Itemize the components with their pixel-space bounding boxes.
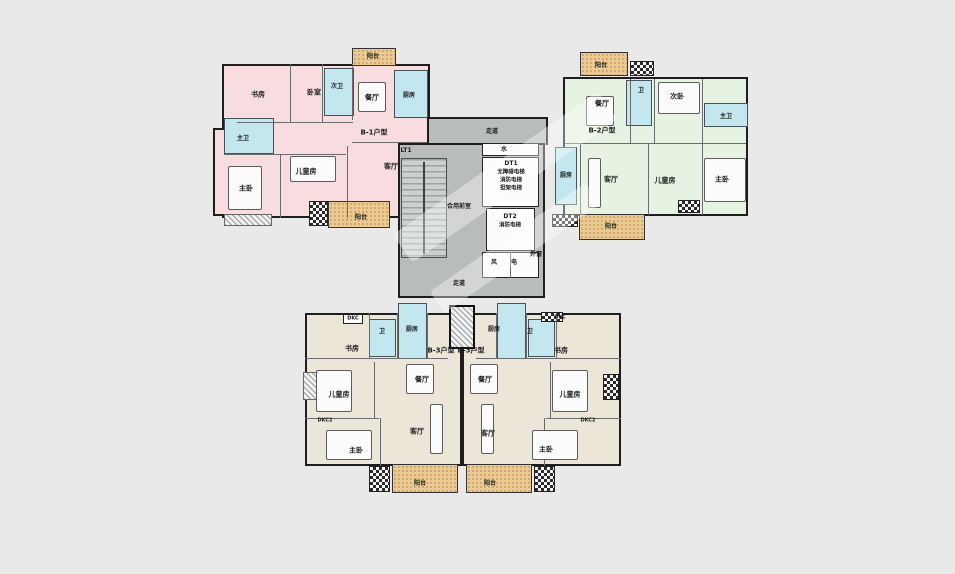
b3r-kids-label: 儿童房 (560, 392, 581, 399)
b3l-kids-label: 儿童房 (329, 392, 350, 399)
b2-bath2-label: 卫 (638, 88, 644, 94)
floor-plan: 阳台书房卧室次卫餐厅厨房B-1户型主卫主卧儿童房客厅阳台阳台餐厅卫次卧主卫B-2… (0, 0, 955, 574)
b3r-balcony-label: 阳台 (484, 481, 496, 487)
labels-layer: 阳台书房卧室次卫餐厅厨房B-1户型主卫主卧儿童房客厅阳台阳台餐厅卫次卧主卫B-2… (0, 0, 955, 574)
b3l-dining-label: 餐厅 (415, 377, 429, 384)
b1-kitchen-label: 厨房 (403, 93, 415, 99)
b3l-type-label: B-3户型 (427, 348, 454, 355)
b3r-ac-side-label: DKC2 (581, 419, 596, 424)
b2-bath1-label: 主卫 (720, 114, 732, 120)
elevator1-note1-label: 无障碍电梯 (497, 170, 525, 176)
b1-master-label: 主卧 (239, 186, 253, 193)
b1-living-label: 客厅 (384, 164, 398, 171)
b3r-master-label: 主卧 (539, 447, 553, 454)
elevator1-note2-label: 消防电梯 (500, 178, 522, 184)
b3r-bath-label: 卫 (527, 329, 533, 335)
elevator2-id-label: DT2 (503, 214, 516, 220)
b3r-kitchen-label: 厨房 (488, 327, 500, 333)
b2-bedroom2-label: 次卧 (670, 94, 684, 101)
b2-kids-label: 儿童房 (655, 178, 676, 185)
b3l-ac-side-label: DKC2 (318, 419, 333, 424)
b3r-study-label: 书房 (554, 348, 568, 355)
b1-study-label: 书房 (251, 92, 265, 99)
elevator2-note1-label: 消防电梯 (499, 223, 521, 229)
b2-balcony-top-label: 阳台 (595, 63, 607, 69)
b1-bath2-label: 次卫 (331, 84, 343, 90)
b3l-master-label: 主卧 (349, 448, 363, 455)
b3l-bath-label: 卫 (379, 329, 385, 335)
core-stair-label: LT1 (400, 148, 411, 154)
b3l-kitchen-label: 厨房 (406, 327, 418, 333)
b3l-ac-top-label: DKC (347, 317, 358, 322)
b2-master-label: 主卧 (715, 177, 729, 184)
b1-type-label: B-1户型 (360, 130, 387, 137)
core-window-label: 外窗 (530, 252, 542, 258)
b3l-balcony-label: 阳台 (414, 481, 426, 487)
b2-dining-label: 餐厅 (595, 101, 609, 108)
b3l-living-label: 客厅 (410, 429, 424, 436)
b2-kitchen-label: 厨房 (560, 173, 572, 179)
core-vent-label: 风 (491, 260, 497, 266)
b1-bedroom-label: 卧室 (307, 90, 321, 97)
b3l-study-label: 书房 (345, 346, 359, 353)
b2-balcony-bottom-label: 阳台 (605, 224, 617, 230)
core-corridor-bottom-label: 走道 (453, 281, 465, 287)
elevator1-note3-label: 担架电梯 (500, 186, 522, 192)
b3r-ac-top-label: DKC (554, 316, 565, 321)
b3r-living-label: 客厅 (481, 431, 495, 438)
b2-type-label: B-2户型 (588, 128, 615, 135)
core-elec-label: 电 (511, 260, 517, 266)
core-water-label: 水 (501, 147, 507, 153)
core-lobby-label: 合用前室 (447, 204, 471, 210)
elevator1-id-label: DT1 (504, 161, 517, 167)
b1-bath1-label: 主卫 (237, 136, 249, 142)
b1-balcony-top-label: 阳台 (367, 54, 379, 60)
b3r-dining-label: 餐厅 (478, 377, 492, 384)
core-corridor-top-label: 走道 (486, 129, 498, 135)
b1-dining-label: 餐厅 (365, 95, 379, 102)
b3r-type-label: B-3户型 (457, 348, 484, 355)
b2-living-label: 客厅 (604, 177, 618, 184)
b1-kids-label: 儿童房 (296, 169, 317, 176)
b1-balcony-bottom-label: 阳台 (355, 215, 367, 221)
